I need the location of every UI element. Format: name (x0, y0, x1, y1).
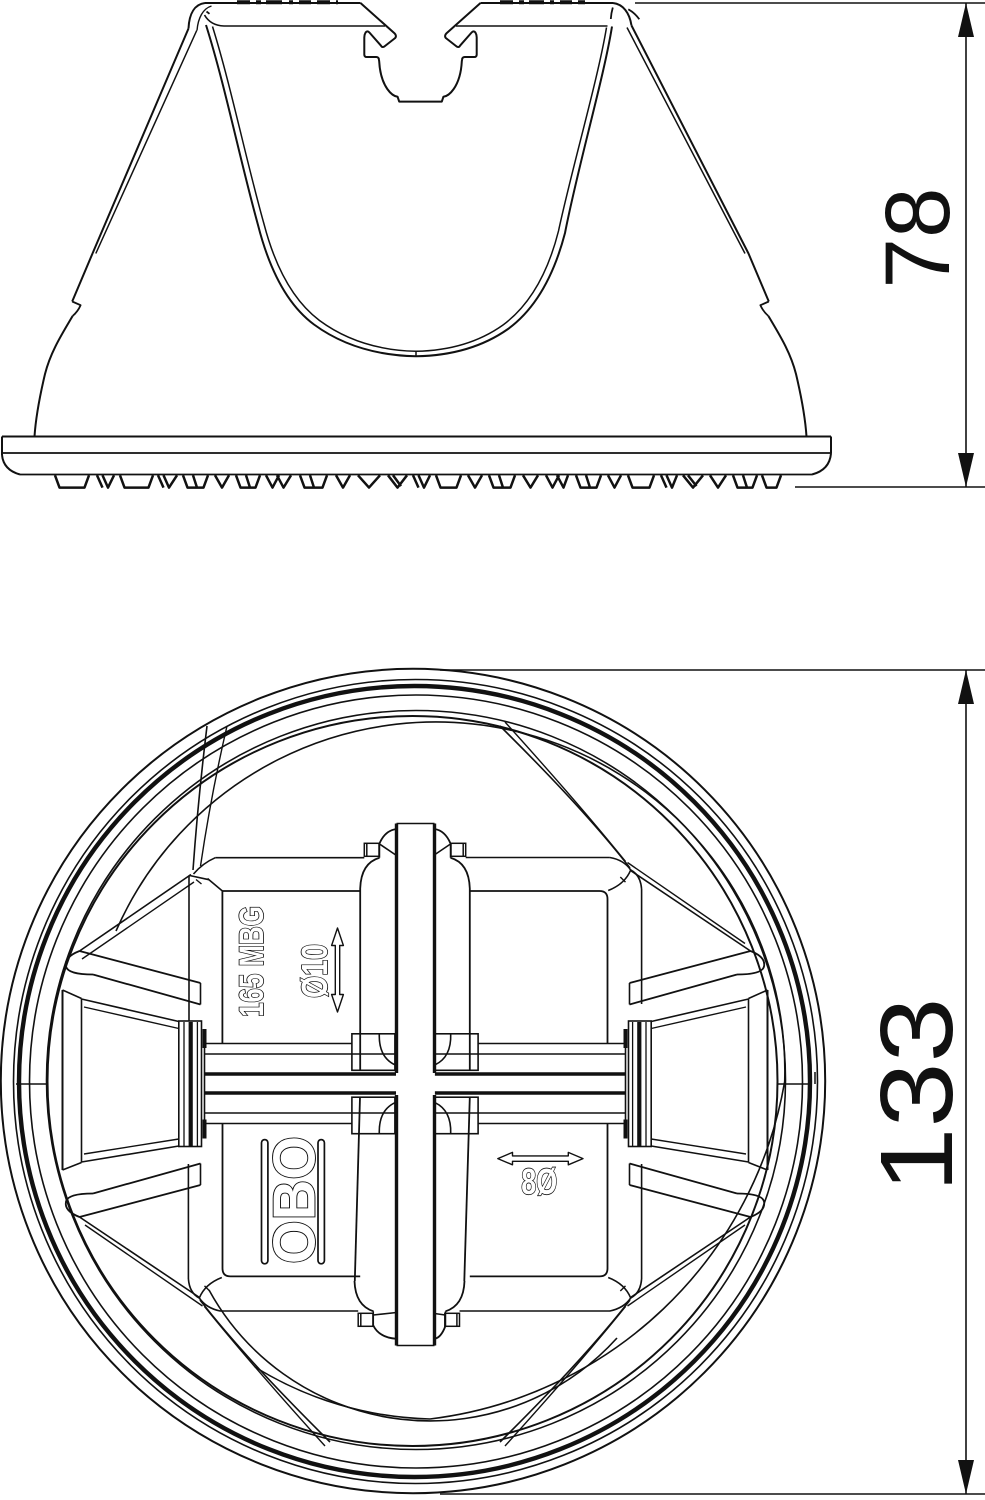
svg-text:165 MBG: 165 MBG (233, 906, 271, 1017)
svg-text:78: 78 (867, 188, 969, 289)
svg-text:8Ø: 8Ø (521, 1161, 557, 1202)
svg-text:OBO: OBO (261, 1136, 327, 1264)
svg-text:Ø10: Ø10 (294, 944, 335, 998)
svg-text:133: 133 (859, 998, 974, 1193)
